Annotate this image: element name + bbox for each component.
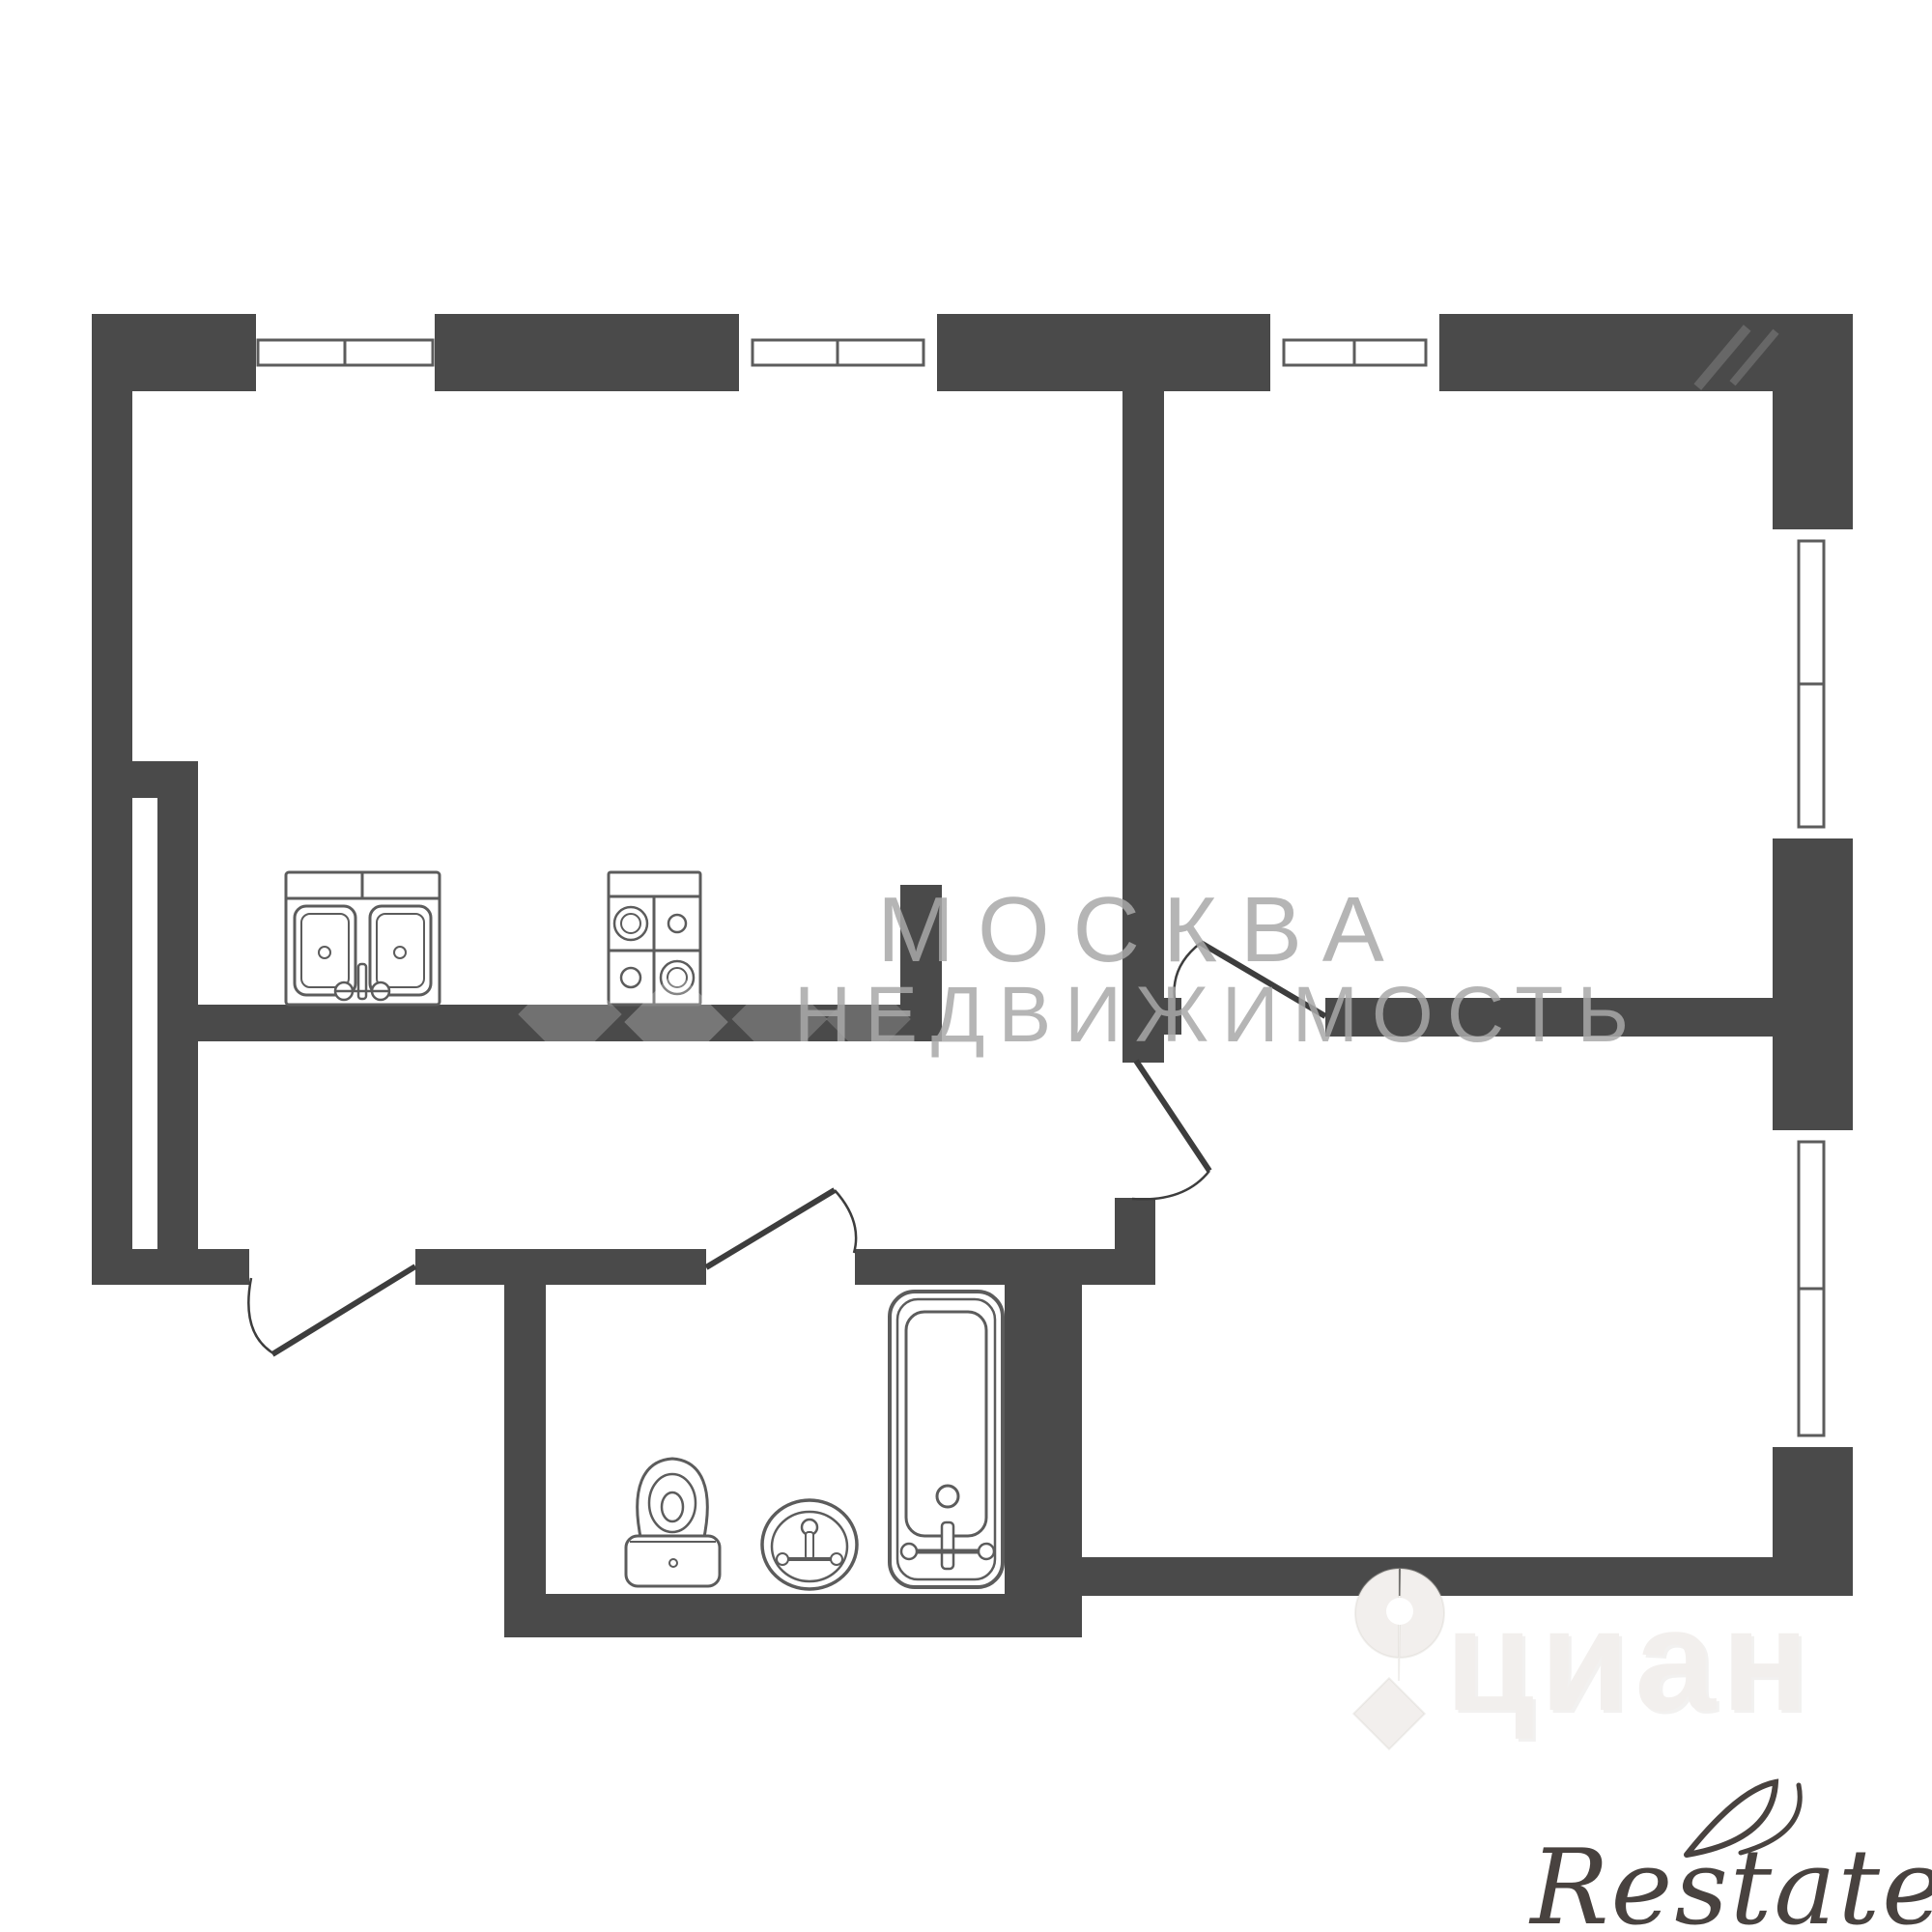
wall-bathroom-room-shared xyxy=(1005,1285,1082,1596)
wall-divider-stub xyxy=(1152,998,1181,1035)
washbasin-icon xyxy=(762,1500,857,1589)
restate-swoosh-icon xyxy=(1687,1782,1800,1855)
bathroom-door-leaf xyxy=(706,1190,835,1267)
toilet-icon xyxy=(626,1459,720,1586)
wall-rooms-divider xyxy=(1325,998,1773,1037)
wall-hall-bottom-left xyxy=(92,1249,249,1285)
entry-door xyxy=(248,1266,415,1354)
room-right-bottom-door-swing-arc xyxy=(1132,1171,1209,1199)
wall-niche-top xyxy=(132,761,198,798)
bathroom-door xyxy=(706,1190,856,1267)
room-right-bottom-door-leaf xyxy=(1136,1061,1209,1171)
watermark-emblem xyxy=(518,962,911,1073)
wall-stub-up xyxy=(1115,1198,1155,1253)
floorplan-drawing xyxy=(0,0,1932,1932)
room-right-bottom-door xyxy=(1132,1061,1209,1199)
floorplan-canvas: МОСКВА НЕДВИЖИМОСТЬ циан Restate xyxy=(0,0,1932,1932)
room-right-top-door-leaf xyxy=(1201,943,1325,1016)
entry-door-swing-arc xyxy=(248,1278,273,1353)
wall-bathroom-left xyxy=(504,1285,546,1637)
cian-pin-icon xyxy=(1353,1569,1444,1749)
kitchen-sink-icon xyxy=(286,872,440,1005)
bathroom-door-swing-arc xyxy=(835,1190,856,1253)
room-right-top-door xyxy=(1175,943,1325,1016)
wall-hall-bottom-right xyxy=(855,1249,1155,1285)
bathtub-icon xyxy=(890,1292,1003,1587)
wall-bathroom-bottom xyxy=(504,1594,1082,1637)
wall-divider-vertical xyxy=(1122,391,1164,1063)
entry-door-leaf xyxy=(272,1266,415,1354)
wall-hall-bottom-mid xyxy=(415,1249,706,1285)
wall-niche-side xyxy=(157,798,198,1285)
room-right-top-door-swing-arc xyxy=(1175,943,1201,999)
wall-exterior-left xyxy=(92,314,132,1285)
